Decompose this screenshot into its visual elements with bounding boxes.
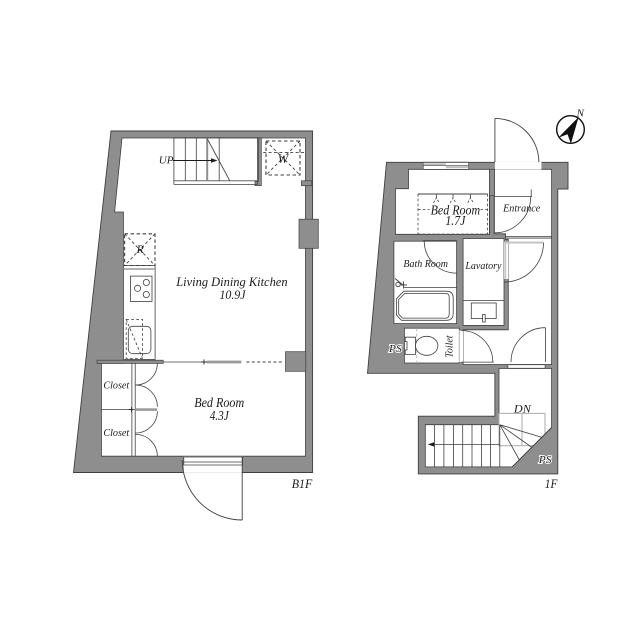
svg-text:Closet: Closet: [103, 428, 129, 439]
svg-text:PS: PS: [538, 455, 552, 466]
svg-text:1F: 1F: [545, 477, 558, 491]
svg-text:Bath Room: Bath Room: [403, 259, 448, 270]
svg-text:Lavatory: Lavatory: [464, 261, 501, 272]
svg-text:UP: UP: [159, 156, 174, 167]
svg-text:W: W: [278, 152, 290, 166]
svg-text:DN: DN: [513, 404, 532, 416]
svg-text:1.7J: 1.7J: [445, 213, 466, 228]
svg-text:Toilet: Toilet: [444, 335, 455, 358]
svg-text:B1F: B1F: [292, 477, 313, 491]
svg-text:N: N: [576, 107, 585, 119]
svg-text:Closet: Closet: [103, 381, 129, 392]
svg-text:4.3J: 4.3J: [210, 408, 230, 423]
svg-text:Entrance: Entrance: [502, 203, 541, 214]
svg-text:PS: PS: [388, 344, 403, 355]
svg-text:R: R: [136, 242, 145, 256]
svg-text:10.9J: 10.9J: [220, 288, 247, 302]
